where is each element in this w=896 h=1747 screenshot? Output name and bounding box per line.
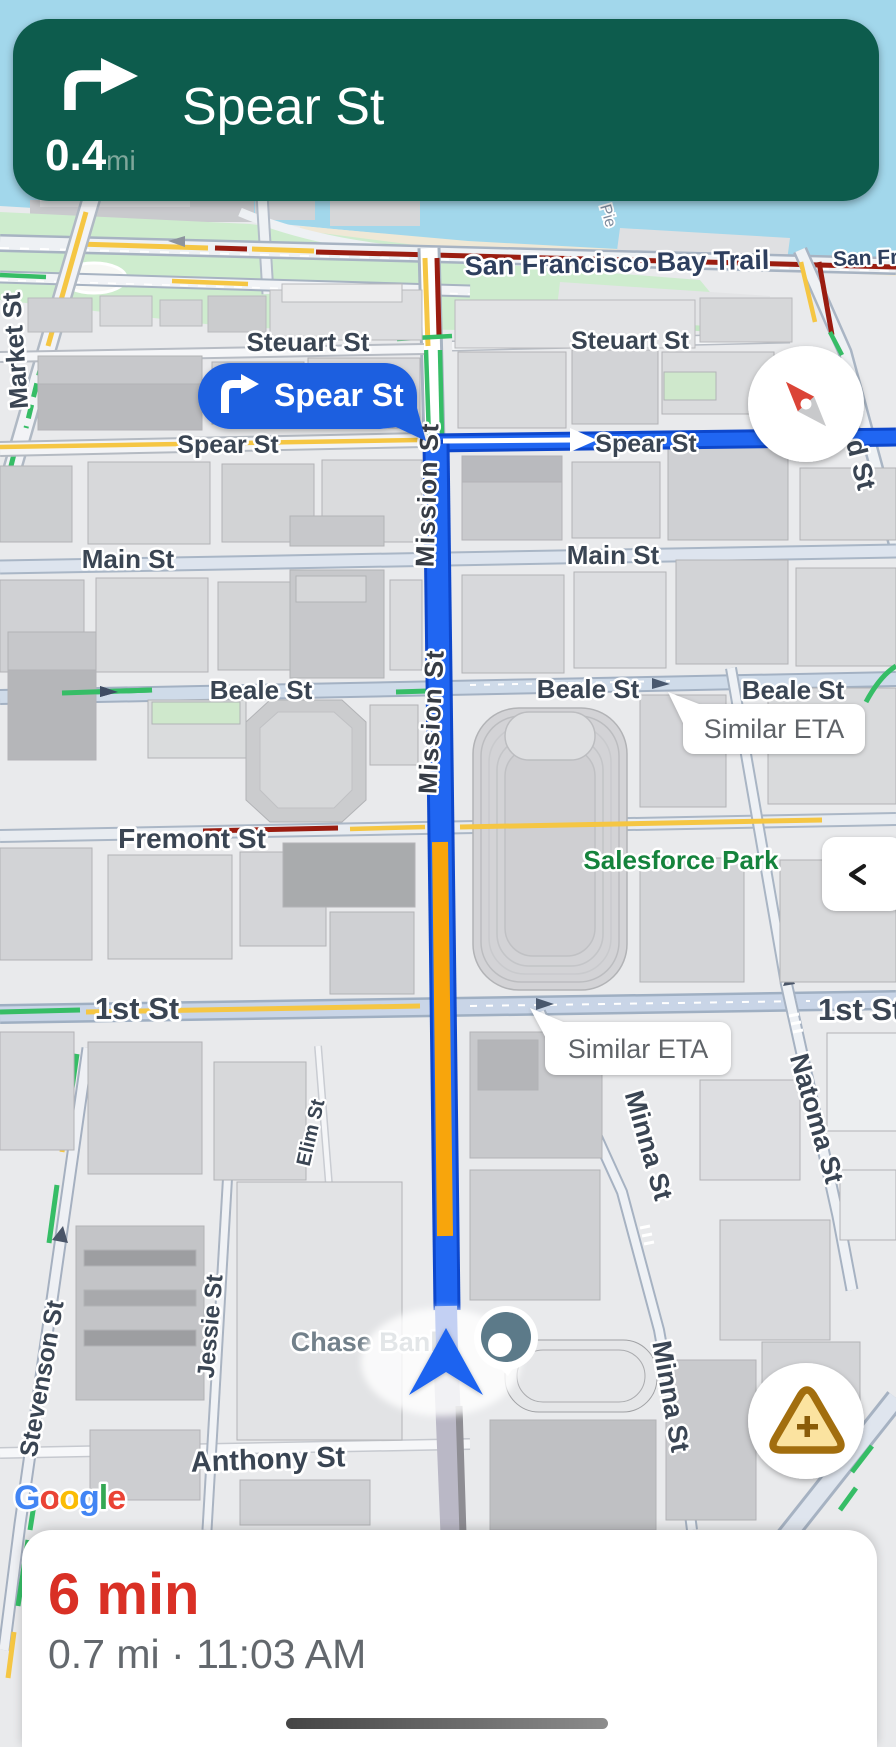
- svg-text:San Fran: San Fran: [833, 245, 896, 271]
- svg-text:Mission St: Mission St: [409, 422, 444, 568]
- svg-text:Spear St: Spear St: [595, 430, 697, 458]
- svg-text:Similar ETA: Similar ETA: [704, 714, 845, 744]
- svg-text:Salesforce Park: Salesforce Park: [583, 845, 779, 875]
- svg-text:San Francisco Bay Trail: San Francisco Bay Trail: [464, 245, 769, 281]
- svg-text:1st St: 1st St: [95, 991, 179, 1026]
- svg-text:Spear St: Spear St: [274, 377, 404, 413]
- svg-text:Beale St: Beale St: [210, 675, 313, 705]
- svg-text:Spear St: Spear St: [177, 431, 279, 459]
- svg-text:Steuart St: Steuart St: [571, 327, 690, 355]
- svg-text:Beale St: Beale St: [742, 675, 845, 705]
- svg-text:Main St: Main St: [82, 544, 175, 574]
- svg-text:Main St: Main St: [567, 540, 660, 570]
- svg-text:1st St: 1st St: [818, 992, 896, 1027]
- svg-text:Beale St: Beale St: [537, 674, 640, 704]
- svg-text:Similar ETA: Similar ETA: [568, 1034, 709, 1064]
- svg-text:Fremont St: Fremont St: [118, 823, 266, 854]
- svg-text:Google: Google: [14, 1479, 125, 1517]
- svg-text:Steuart St: Steuart St: [247, 327, 370, 357]
- svg-text:Anthony St: Anthony St: [190, 1441, 346, 1478]
